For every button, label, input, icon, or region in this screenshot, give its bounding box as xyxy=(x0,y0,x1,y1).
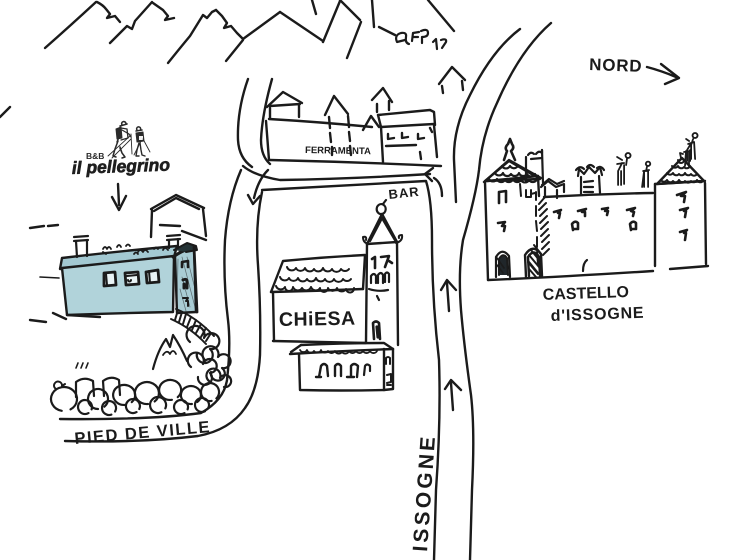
svg-text:il pellegrino: il pellegrino xyxy=(71,155,170,178)
svg-text:FERRAMENTA: FERRAMENTA xyxy=(305,145,371,157)
svg-text:NORD: NORD xyxy=(589,55,643,76)
svg-text:d'ISSOGNE: d'ISSOGNE xyxy=(550,305,644,325)
svg-text:CASTELLO: CASTELLO xyxy=(542,284,629,304)
svg-text:CHiESA: CHiESA xyxy=(279,308,356,331)
